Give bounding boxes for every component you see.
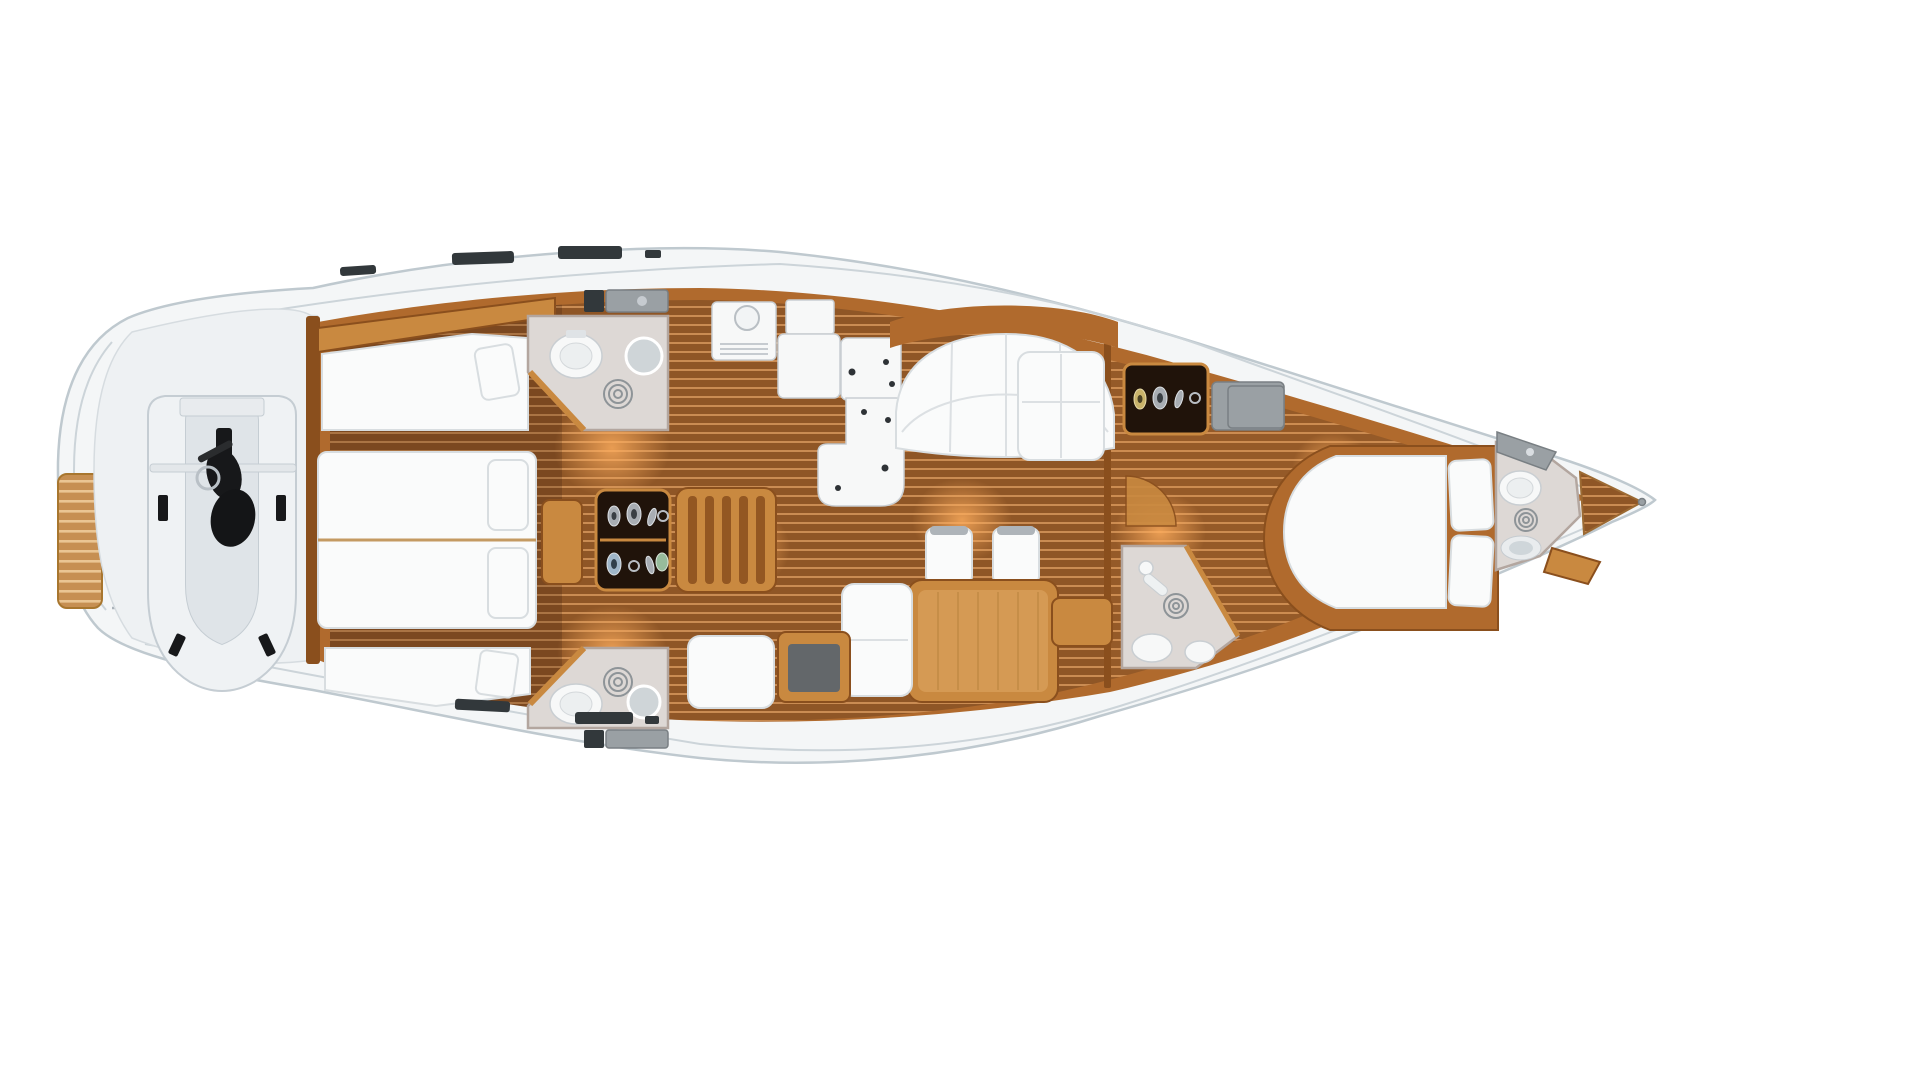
overhead-locker: [1228, 386, 1284, 428]
chart-desk: [778, 632, 850, 702]
pillow: [1448, 459, 1494, 531]
display-cabinet-forward: [1124, 364, 1208, 434]
deck-hatch: [558, 246, 622, 259]
refrigerator-unit: [712, 302, 776, 360]
sofa-bench: [688, 636, 774, 708]
pillow: [488, 460, 528, 530]
dinghy-transom: [180, 398, 264, 416]
deck-hatch: [645, 716, 659, 724]
washbasin: [626, 338, 662, 374]
round-sink: [735, 306, 759, 330]
forestay-fitting: [1639, 499, 1646, 506]
vanity-counter: [606, 730, 668, 748]
deck-hatch: [645, 250, 661, 258]
faucet: [1526, 448, 1534, 456]
chaise-seat: [842, 584, 912, 696]
double-berth: [1284, 456, 1446, 608]
side-table: [1052, 598, 1112, 646]
washbasin: [628, 686, 660, 718]
deck-hatch: [452, 251, 514, 265]
floorplan-svg: [0, 0, 1920, 1080]
faucet: [637, 296, 647, 306]
deck-hatch: [575, 712, 633, 724]
dining-table: [908, 580, 1058, 702]
toilet: [1132, 634, 1172, 662]
pillow: [475, 650, 519, 699]
companionway: [596, 488, 776, 592]
toilet: [1499, 471, 1541, 505]
dining-chair: [993, 526, 1039, 584]
nightstand: [542, 500, 582, 584]
pillow: [474, 343, 520, 401]
companionway-stairs: [676, 488, 776, 592]
appliance: [786, 300, 834, 334]
twin-berths: [318, 452, 536, 628]
worktop: [778, 334, 840, 398]
dining-chair: [926, 526, 972, 584]
washbasin: [1501, 536, 1541, 560]
dark-locker: [584, 290, 604, 312]
yacht-floorplan-image: [0, 0, 1920, 1080]
display-cabinet-aft: [596, 490, 670, 590]
washbasin: [1185, 641, 1215, 663]
pillow: [488, 548, 528, 618]
nav-cabinet: [1018, 352, 1104, 460]
dark-locker: [584, 730, 604, 748]
pillow: [1448, 535, 1494, 607]
